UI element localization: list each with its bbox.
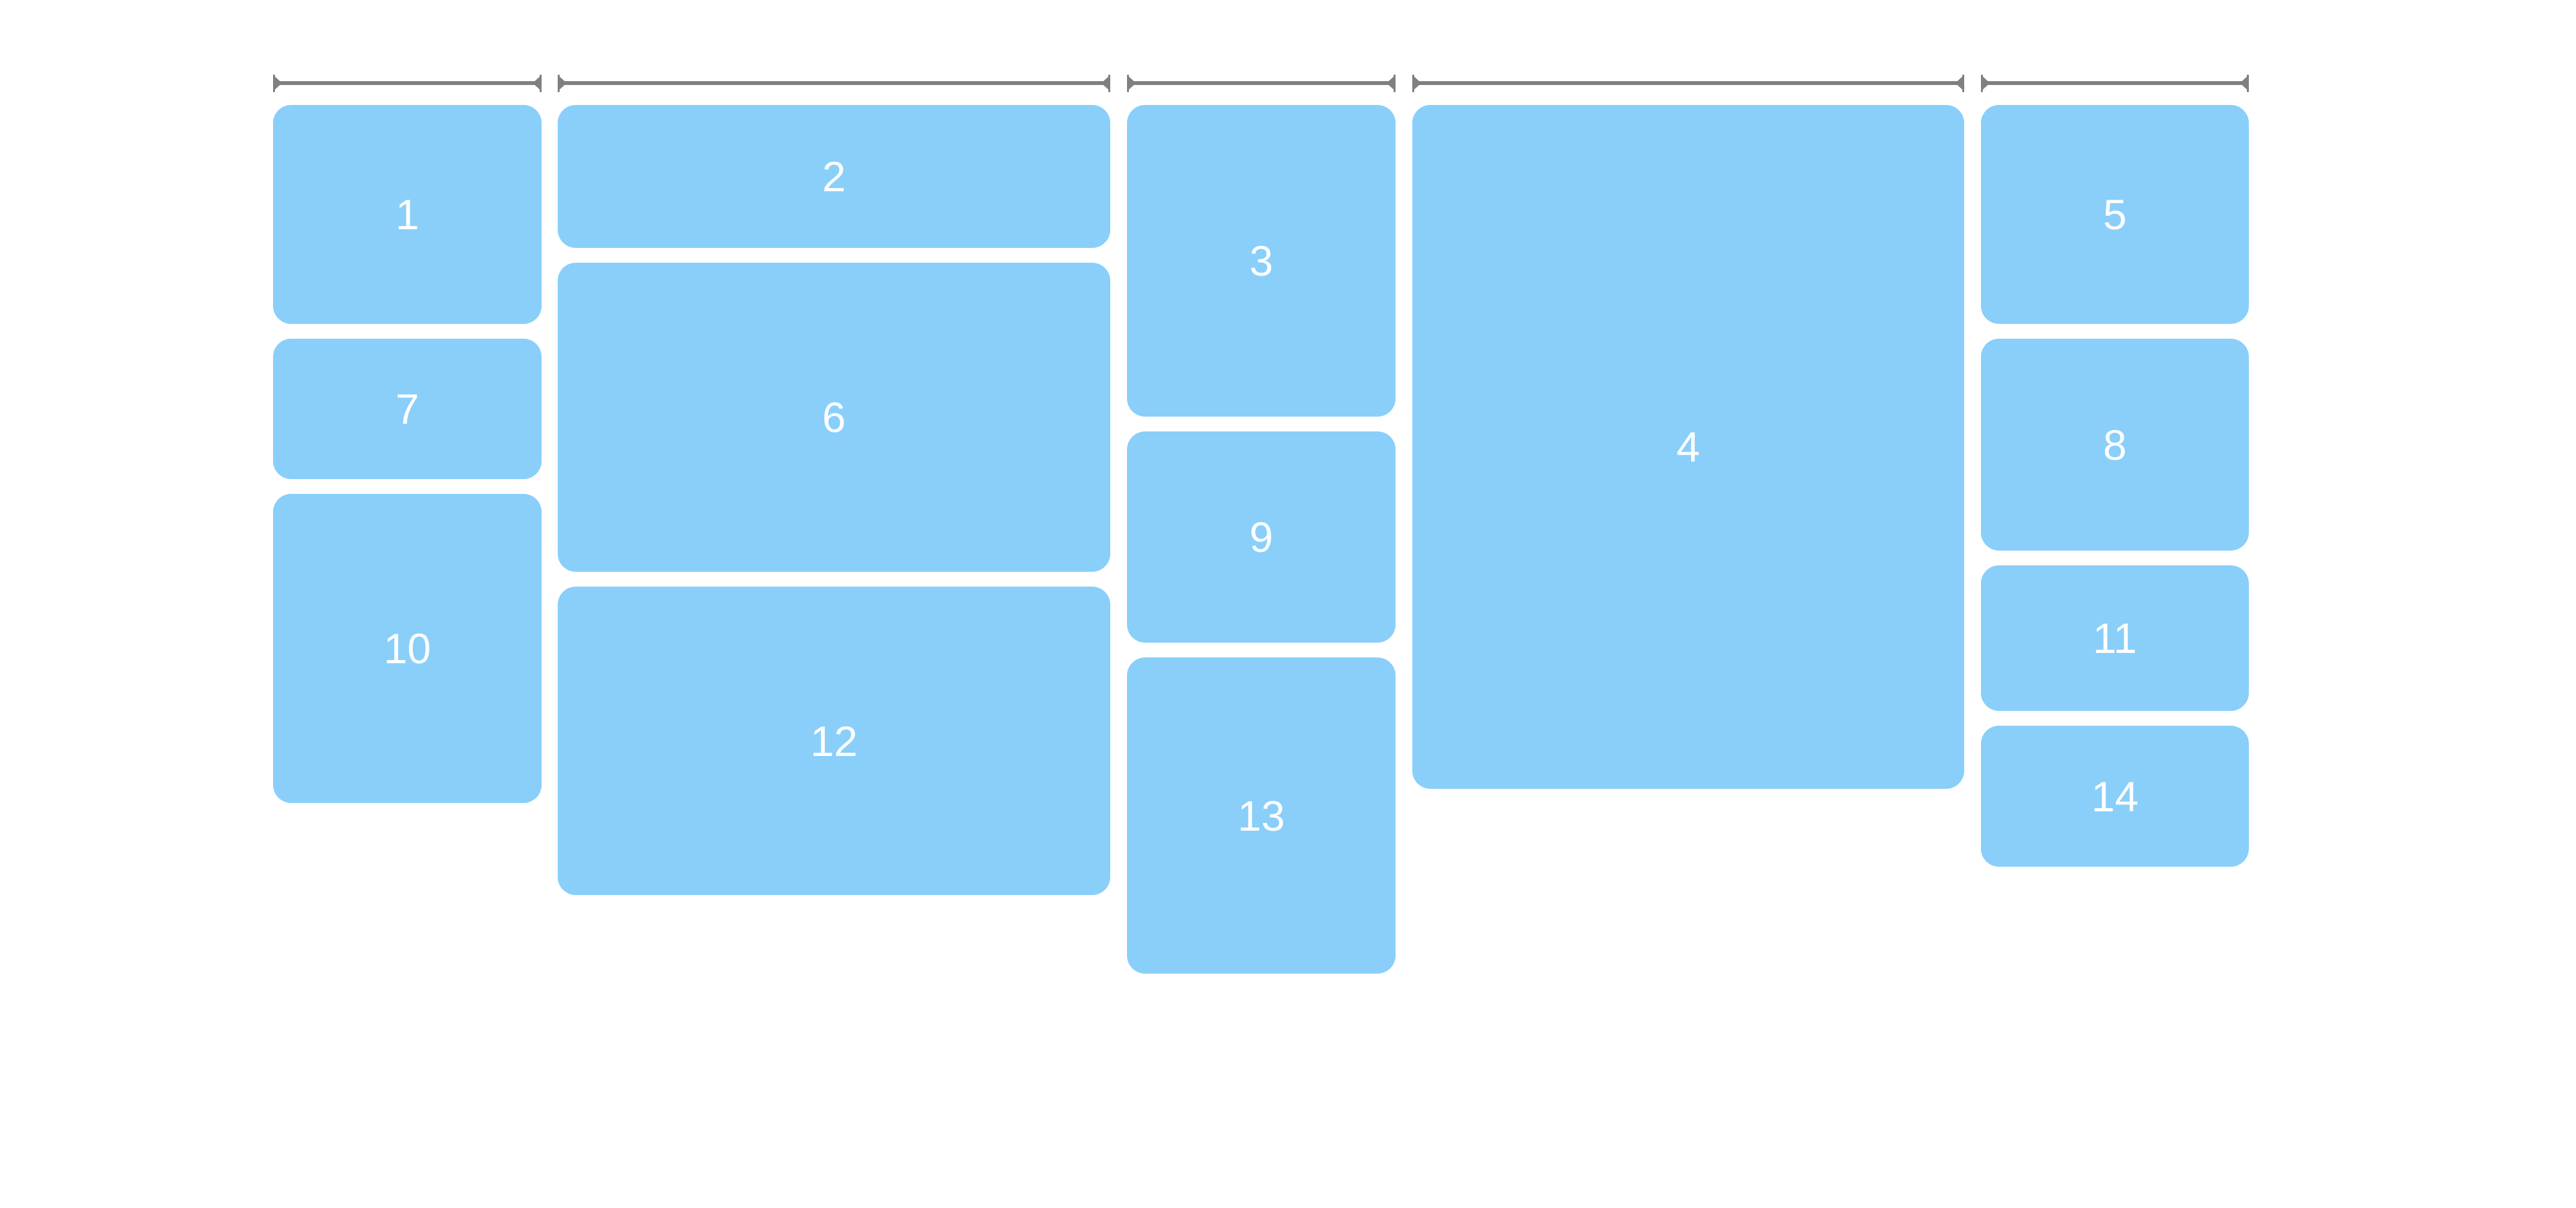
ruler-end-arrow-icon	[1387, 77, 1394, 90]
ruler-end-arrow-icon	[1955, 77, 1962, 90]
masonry-column-5: 5 8 11 14	[1981, 105, 2249, 867]
masonry-column-3: 3 9 13	[1127, 105, 1396, 974]
ruler-line	[1982, 81, 2248, 85]
masonry-column-2: 2 6 12	[558, 105, 1110, 895]
ruler-line	[1128, 81, 1394, 85]
ruler-end-tick	[1108, 75, 1110, 92]
canvas: 1 7 10 2 6 12 3 9 13 4 5 8 11 14	[0, 0, 2576, 1208]
ruler-end-arrow-icon	[2240, 77, 2247, 90]
ruler-line	[559, 81, 1109, 85]
masonry-item: 6	[558, 263, 1110, 572]
masonry-item: 5	[1981, 105, 2249, 324]
column-2-width-ruler	[558, 75, 1110, 92]
masonry-item: 1	[273, 105, 542, 324]
masonry-column-1: 1 7 10	[273, 105, 542, 803]
ruler-end-tick	[1962, 75, 1964, 92]
masonry-item: 4	[1412, 105, 1964, 789]
ruler-end-arrow-icon	[1101, 77, 1108, 90]
ruler-line	[1414, 81, 1963, 85]
ruler-end-tick	[1394, 75, 1396, 92]
masonry-item: 12	[558, 587, 1110, 895]
masonry-item: 3	[1127, 105, 1396, 417]
masonry-item: 11	[1981, 565, 2249, 711]
column-4-width-ruler	[1412, 75, 1964, 92]
masonry-item: 9	[1127, 431, 1396, 643]
column-3-width-ruler	[1127, 75, 1396, 92]
masonry-item: 7	[273, 339, 542, 479]
masonry-item: 14	[1981, 726, 2249, 867]
ruler-end-arrow-icon	[533, 77, 540, 90]
column-5-width-ruler	[1981, 75, 2249, 92]
masonry-item: 2	[558, 105, 1110, 248]
ruler-end-tick	[540, 75, 542, 92]
masonry-column-4: 4	[1412, 105, 1964, 789]
masonry-item: 8	[1981, 339, 2249, 551]
ruler-end-tick	[2247, 75, 2249, 92]
ruler-line	[274, 81, 540, 85]
column-1-width-ruler	[273, 75, 542, 92]
masonry-item: 10	[273, 494, 542, 803]
masonry-item: 13	[1127, 657, 1396, 974]
